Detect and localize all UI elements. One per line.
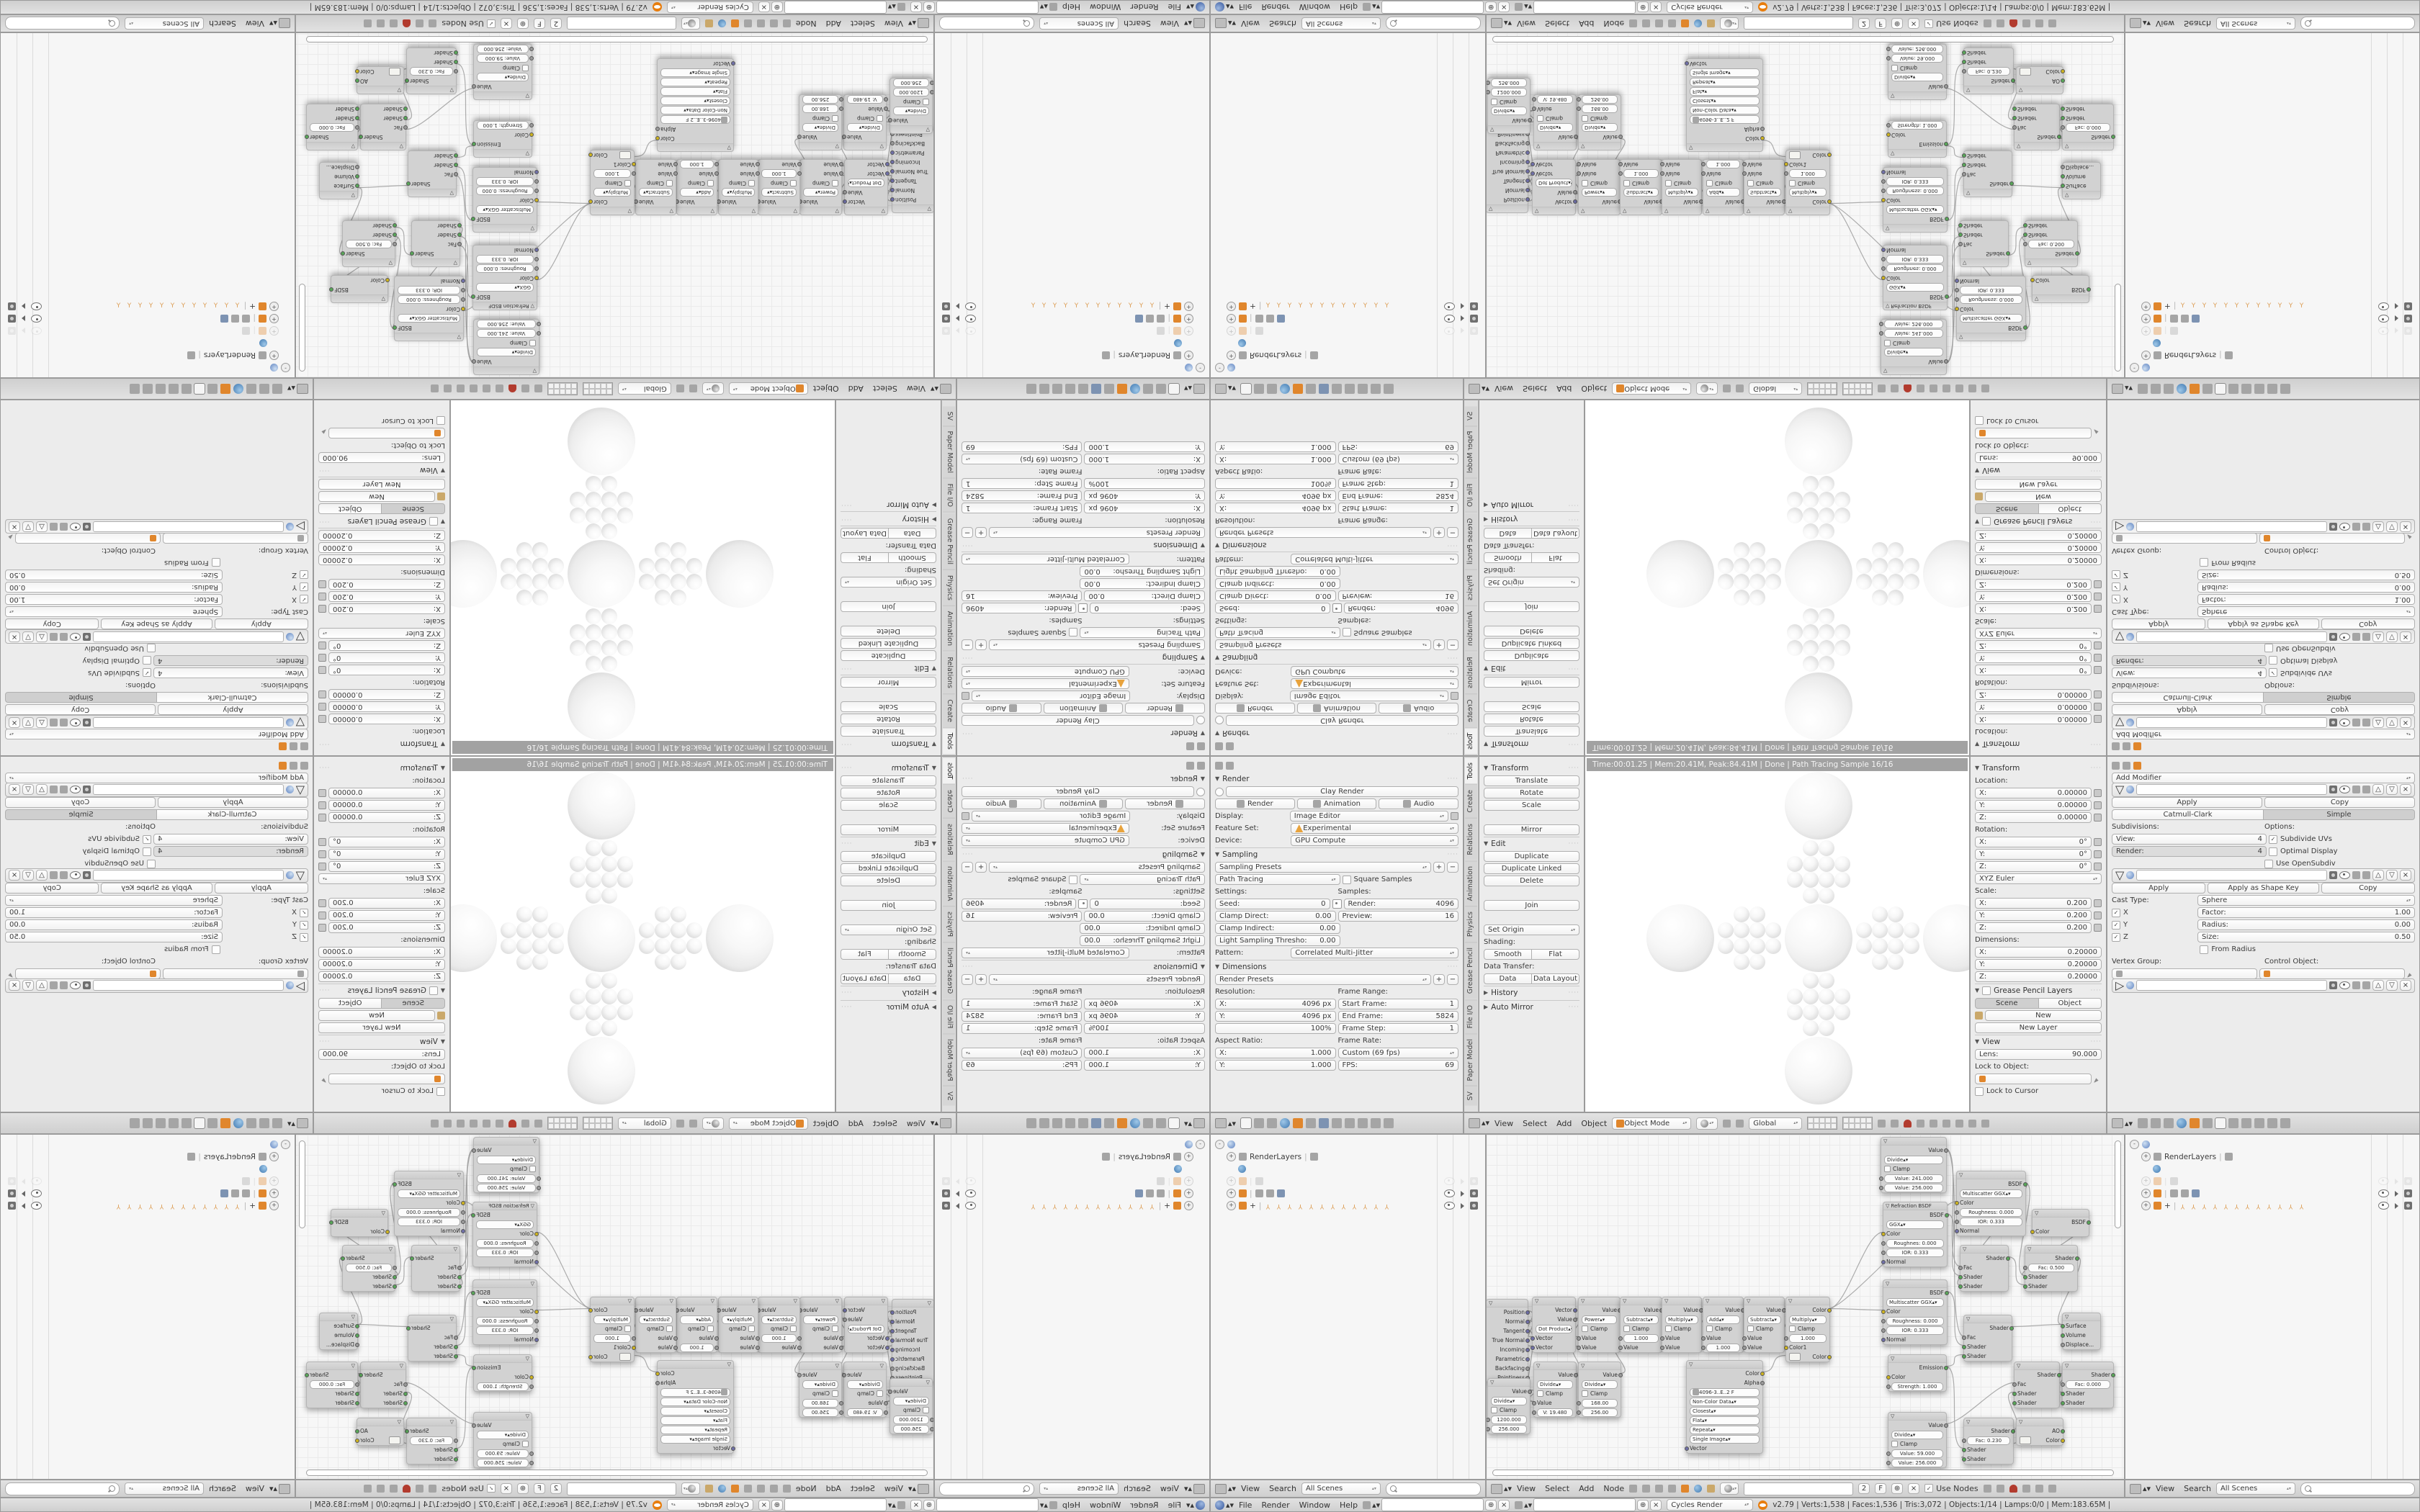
checkbox-z[interactable]: ✓Z (225, 571, 308, 580)
node-checkbox-clamp[interactable] (923, 99, 929, 105)
node-select-repeat[interactable]: Repeat▴▾ (1690, 78, 1760, 87)
select-path-tracing[interactable]: Path Tracing▴▾ (1080, 627, 1206, 638)
outliner-row[interactable]: +| (2130, 1187, 2415, 1200)
layer-cell[interactable] (601, 1117, 606, 1123)
field-frame-step[interactable]: Frame Step:1 (962, 1023, 1083, 1034)
fake-user-button[interactable]: F (1875, 18, 1886, 29)
field-y[interactable]: Y:0.00000 (1975, 701, 2092, 712)
eyedrop-icon[interactable] (2094, 429, 2102, 437)
node-math-23[interactable]: ▽ShaderFac: 0.000ShaderShader (2062, 104, 2114, 150)
outliner-row[interactable]: ++|YYYYYYYYYYYY (2130, 1200, 2415, 1212)
node-math-21[interactable]: ▽EmissionColorStrength: 1.000 (1888, 1354, 1947, 1392)
node-field-256-00[interactable]: 256.00 (802, 96, 838, 104)
node-math-9[interactable]: ▽ValueSubtract▴▾ClampValueValue (1744, 1297, 1785, 1353)
modifier-up-button[interactable]: △ (2372, 784, 2384, 795)
menu-view[interactable]: View (1517, 1484, 1536, 1493)
select-correlated-multi-jitter[interactable]: Correlated Multi-Jitter▴▾ (1291, 554, 1458, 564)
modifier-name-field[interactable] (93, 521, 284, 532)
menu-select[interactable]: Select (873, 1119, 897, 1128)
node-field-168-00[interactable]: 168.00 (1582, 1399, 1618, 1408)
context-tab-texture-icon[interactable] (156, 384, 166, 394)
output-socket-color[interactable] (2061, 1439, 2065, 1443)
node-header[interactable]: ▽ (2033, 294, 2089, 302)
modifier-name-field[interactable] (2136, 870, 2327, 881)
field-seed[interactable]: Seed:0 (1215, 899, 1330, 909)
node-select-non-color-data[interactable]: Non-Color Data▴▾ (660, 107, 730, 115)
layer-cell[interactable] (589, 389, 595, 395)
tab-paper-model[interactable]: Paper Model (943, 426, 955, 479)
checkbox-optimal-display[interactable]: Optimal Display (5, 657, 151, 665)
segbtn-simple[interactable]: Simple (5, 809, 156, 820)
field-z[interactable]: Z:0.200 (328, 579, 445, 590)
output-socket-color[interactable] (1827, 1355, 1832, 1359)
node-math-1[interactable]: ▽ValueDivide▴▾Clamp1200.000256.000 (1487, 1378, 1531, 1434)
node-editor-hscrollbar[interactable] (1492, 1470, 2114, 1476)
field-y[interactable]: Y:4096 px (1215, 490, 1336, 501)
field-z[interactable]: Z:0.00000 (328, 812, 445, 823)
node-field-1200-000[interactable]: 1200.000 (1491, 1416, 1527, 1424)
lock-icon[interactable] (2094, 801, 2102, 809)
output-socket-alpha[interactable] (655, 127, 660, 131)
node-math-17[interactable]: ▽ShaderFacShaderShader (411, 1245, 460, 1292)
input-socket-shader[interactable] (1962, 50, 1966, 55)
node-header[interactable]: ▽ (1744, 207, 1784, 215)
layer-cell[interactable] (1819, 1117, 1825, 1123)
eye-icon[interactable] (965, 1177, 976, 1185)
node-header[interactable]: ▽ (1964, 1315, 2012, 1323)
node-math-14[interactable]: ▽BSDFMultiscatter GGX▴▾ColorRoughness: 0… (472, 167, 537, 233)
menu-view[interactable]: View (1494, 384, 1513, 394)
node-math-24[interactable]: ▽ValueDivide▴▾ClampValue: 59.000Value: 2… (1888, 1412, 1947, 1468)
context-tab-scene-icon[interactable] (1143, 1118, 1153, 1128)
context-tab-object-icon[interactable] (1293, 1118, 1303, 1128)
field-clamp-direct[interactable]: Clamp Direct:0.00 (1215, 590, 1336, 601)
menu-view[interactable]: View (2156, 19, 2174, 28)
node-header[interactable]: ▽ (758, 207, 799, 215)
panel-view[interactable]: ▼View···· (1975, 1035, 2102, 1048)
input-socket[interactable] (714, 162, 719, 166)
checkbox-box[interactable] (2200, 559, 2208, 567)
select-image-editor[interactable]: Image Editor▴▾ (1290, 690, 1448, 701)
panel-checkbox[interactable] (1982, 518, 1991, 526)
field-render[interactable]: Render:4 (153, 846, 308, 857)
node-field-roughness-0-000[interactable]: Roughness: 0.000 (398, 296, 460, 305)
node-field-1200-000[interactable]: 1200.000 (893, 89, 929, 97)
layer-cell[interactable] (548, 389, 554, 395)
context-tab-scene-icon[interactable] (2164, 384, 2174, 394)
node-math-20[interactable]: ▽SurfaceVolumeDisplace... (2062, 162, 2101, 199)
editor-type-button[interactable]: ▴▾ (2112, 384, 2133, 394)
context-tab-texture-icon[interactable] (1358, 384, 1368, 394)
layer-cell[interactable] (1831, 383, 1837, 389)
node-header[interactable]: ▽Refraction BSDF (1883, 1202, 1947, 1210)
field-start-frame[interactable]: Start Frame:1 (962, 503, 1083, 513)
menu-object[interactable]: Object (1581, 1119, 1607, 1128)
input-socket[interactable] (1881, 257, 1886, 261)
context-tab-constraints-icon[interactable] (207, 1118, 218, 1128)
node-math-15[interactable]: ▽BSDFMultiscatter GGX▴▾ColorRoughness: 0… (1956, 1171, 2026, 1236)
node-header[interactable]: ▽ (677, 1297, 717, 1305)
input-socket-volume[interactable] (355, 1333, 359, 1338)
node-select-multiscatter-ggx[interactable]: Multiscatter GGX▴▾ (1886, 1298, 1944, 1307)
node-select-multiply[interactable]: Multiply▴▾ (722, 1315, 755, 1324)
input-socket[interactable] (1881, 189, 1886, 193)
eye-icon[interactable] (2378, 1189, 2389, 1197)
field-render[interactable]: Render:4096 (1344, 603, 1459, 613)
input-socket[interactable] (1886, 1452, 1891, 1456)
segbtn-flat[interactable]: Flat (841, 552, 888, 563)
input-socket[interactable] (2061, 1382, 2065, 1387)
material-name-field[interactable] (1744, 17, 1853, 30)
node-math-20[interactable]: ▽SurfaceVolumeDisplace... (319, 1313, 358, 1350)
node-editor-vscrollbar[interactable] (2115, 284, 2121, 372)
output-socket-value[interactable] (1944, 1423, 1948, 1428)
mini-button-add[interactable]: + (1433, 974, 1445, 985)
cursor-icon[interactable] (2395, 328, 2398, 334)
node-header[interactable]: ▽ (2025, 1246, 2077, 1254)
lock-icon[interactable] (2094, 580, 2102, 588)
select-custom-69-fps[interactable]: Custom (69 fps)▴▾ (1338, 1048, 1459, 1058)
panel-history[interactable]: ▶History···· (841, 513, 936, 526)
close-button[interactable]: × (1498, 2, 1510, 13)
panel-auto-mirror[interactable]: ▶Auto Mirror···· (1484, 499, 1579, 512)
field-lens[interactable]: Lens:90.000 (1975, 452, 2102, 463)
input-socket-normal[interactable] (534, 170, 539, 174)
tab-file-i-o[interactable]: File I/O (943, 999, 955, 1033)
modifier-delete-button[interactable]: × (2400, 980, 2411, 991)
expand-toggle-icon[interactable]: + (1184, 326, 1193, 336)
editor-type-button[interactable]: ▴▾ (1215, 1118, 1236, 1128)
input-socket-shader[interactable] (457, 1284, 462, 1289)
lock-icon[interactable] (318, 924, 326, 932)
input-socket-shader[interactable] (1962, 163, 1966, 167)
button-new-layer[interactable]: New Layer (318, 479, 445, 490)
output-socket-parametric[interactable] (1525, 150, 1530, 155)
node-math-22[interactable]: ▽ShaderFacShaderShader (360, 1362, 406, 1408)
select-gpu-compute[interactable]: GPU Compute▴▾ (962, 666, 1129, 677)
node-select-multiscatter-ggx[interactable]: Multiscatter GGX▴▾ (476, 1298, 534, 1307)
node-select-multiply[interactable]: Multiply▴▾ (1665, 1315, 1698, 1324)
expand-toggle-icon[interactable]: + (1227, 1201, 1236, 1210)
context-tab-physics-icon[interactable] (2280, 384, 2290, 394)
input-socket-value[interactable] (1577, 1346, 1581, 1350)
node-field-value-241-000[interactable]: Value: 241.000 (1884, 1174, 1943, 1183)
output-socket-ao[interactable] (355, 1429, 359, 1434)
select-sampling-presets[interactable]: Sampling Presets▴▾ (1215, 862, 1431, 873)
eye-icon[interactable] (965, 327, 976, 335)
modifier-name-field[interactable] (2136, 717, 2327, 728)
panel-grease-pencil-layers[interactable]: ▼Grease Pencil Layers···· (1975, 984, 2102, 996)
node-math-19[interactable]: ▽ShaderFacShaderShader (408, 1315, 457, 1362)
checkbox-subdivide-uvs[interactable]: ✓Subdivide UVs (5, 669, 151, 678)
select-custom-69-fps[interactable]: Custom (69 fps)▴▾ (962, 1048, 1083, 1058)
field-x[interactable]: X:4096 px (1085, 503, 1206, 513)
node-math-12[interactable]: ▽ValueDivide▴▾ClampValue: 241.000Value: … (1881, 319, 1947, 375)
context-tab-scene-icon[interactable] (1267, 1118, 1277, 1128)
output-socket-bsdf[interactable] (471, 294, 475, 299)
node-select-multiscatter-ggx[interactable]: Multiscatter GGX▴▾ (398, 1189, 460, 1198)
field-radius[interactable]: Radius:0.00 (2197, 582, 2415, 593)
node-select-closest[interactable]: Closest▴▾ (660, 97, 730, 106)
field-start-frame[interactable]: Start Frame:1 (962, 999, 1083, 1009)
node-field-256-000[interactable]: 256.000 (1491, 1425, 1527, 1434)
menu-view[interactable]: View (907, 1119, 926, 1128)
node-select-subtract[interactable]: Subtract▴▾ (1747, 189, 1781, 197)
eyedrop-icon[interactable] (318, 1075, 326, 1083)
button-new[interactable]: New (1985, 491, 2102, 502)
select-custom-69-fps[interactable]: Custom (69 fps)▴▾ (962, 454, 1083, 464)
unlink-material-button[interactable]: × (1908, 1483, 1919, 1494)
node-field-value-256-000[interactable]: Value: 256.000 (477, 320, 536, 329)
tab-paper-model[interactable]: Paper Model (1465, 1033, 1477, 1086)
layer-cell[interactable] (583, 1117, 589, 1123)
field-x[interactable]: X:0° (328, 665, 445, 675)
node-header[interactable]: ▽ (1964, 189, 2012, 197)
node-math-18[interactable]: ▽ShaderFac: 0.500ShaderShader (2025, 1245, 2078, 1292)
node-checkbox-clamp[interactable] (748, 180, 755, 186)
output-socket-value[interactable] (472, 1148, 476, 1153)
select-image-editor[interactable]: Image Editor▴▾ (1290, 811, 1448, 822)
node-math-17[interactable]: ▽ShaderFacShaderShader (1960, 220, 2009, 267)
lock-icon[interactable] (2094, 654, 2102, 662)
outliner-row[interactable]: +| (5, 1187, 290, 1200)
button-animation[interactable]: Animation (1044, 703, 1124, 714)
panel-transform[interactable]: ▼Transform···· (1975, 738, 2102, 750)
select-sampling-presets[interactable]: Sampling Presets▴▾ (989, 639, 1205, 650)
context-tab-modifiers-icon[interactable] (194, 1118, 205, 1128)
input-socket-value[interactable] (756, 171, 760, 176)
outliner-row[interactable]: +| (1215, 1187, 1481, 1200)
field-x[interactable]: X:0.200 (328, 898, 445, 909)
node-header[interactable]: ▽ (799, 1362, 841, 1370)
new-material-button[interactable]: ⊕ (1891, 18, 1903, 29)
field-preview[interactable]: Preview:16 (962, 911, 1083, 922)
input-socket-color[interactable] (461, 307, 465, 311)
context-tab-render-icon[interactable] (1241, 1118, 1251, 1128)
eyedrop-icon[interactable] (2094, 1075, 2102, 1083)
material-name-field[interactable] (1744, 1482, 1853, 1495)
input-socket[interactable] (797, 171, 802, 176)
input-socket[interactable] (529, 1385, 534, 1389)
scene-selector[interactable] (1533, 1498, 1636, 1511)
menu-search[interactable]: Search (209, 1484, 236, 1493)
node-checkbox-clamp[interactable] (1623, 1326, 1630, 1332)
material-name-field[interactable] (567, 1482, 676, 1495)
input-socket[interactable] (1532, 97, 1536, 102)
viewport-3d[interactable]: Time:00:01.25 | Mem:20.41M, Peak:84.41M … (1585, 756, 1970, 1112)
node-select-divide[interactable]: Divide▴▾ (1537, 124, 1573, 132)
node-header[interactable]: ▽ (677, 207, 717, 215)
expand-toggle-icon[interactable]: + (2141, 1201, 2151, 1210)
scene-filter-select[interactable]: All Scenes▴▾ (1039, 1482, 1119, 1495)
menu-select[interactable]: Select (1545, 1484, 1569, 1493)
editor-type-button[interactable]: ▴▾ (287, 384, 308, 394)
node-field-256-000[interactable]: 256.000 (1491, 79, 1527, 88)
node-checkbox-clamp[interactable] (1537, 115, 1543, 122)
input-socket[interactable] (1879, 331, 1883, 336)
node-header[interactable]: ▽ (357, 1418, 403, 1426)
output-socket-tangent[interactable] (890, 1329, 895, 1333)
add-button[interactable]: ⊕ (923, 1500, 935, 1511)
eye-icon[interactable] (965, 1202, 976, 1210)
camera-icon[interactable] (942, 1202, 950, 1210)
node-field-168-00[interactable]: 168.00 (802, 1399, 838, 1408)
input-socket-vector[interactable] (1685, 61, 1689, 66)
node-header[interactable]: ▽ (845, 1297, 887, 1305)
tab-file-i-o[interactable]: File I/O (1465, 999, 1477, 1033)
checkbox-box[interactable]: ✓ (143, 835, 151, 844)
node-select-multiply[interactable]: Multiply▴▾ (722, 189, 755, 197)
layer-cell[interactable] (606, 383, 612, 389)
eye-icon[interactable] (1444, 327, 1455, 335)
input-socket-color[interactable] (2030, 278, 2035, 282)
select-sphere[interactable]: Sphere▴▾ (5, 895, 223, 906)
node-checkbox-clamp[interactable] (1884, 1166, 1891, 1172)
expand-toggle-icon[interactable]: + (2141, 1189, 2151, 1198)
field-render[interactable]: Render:4 (153, 655, 308, 666)
layers-widget[interactable] (547, 1117, 578, 1130)
field-y[interactable]: Y:0° (1975, 652, 2092, 663)
add-button[interactable]: ⊕ (771, 1500, 783, 1511)
node-select-add[interactable]: Add▴▾ (1706, 189, 1740, 197)
cursor-icon[interactable] (2395, 1179, 2398, 1184)
checkbox-box[interactable]: ✓ (300, 583, 308, 592)
checkbox-x[interactable]: ✓X (225, 595, 308, 604)
lock-icon[interactable] (1451, 812, 1458, 820)
node-select-divide[interactable]: Divide▴▾ (1891, 73, 1943, 82)
node-header[interactable]: ▽ (1703, 207, 1743, 215)
input-socket[interactable] (1577, 107, 1581, 111)
field-view[interactable]: View:4 (153, 667, 308, 678)
node-field-strength-1-000[interactable]: Strength: 1.000 (477, 1382, 529, 1391)
node-header[interactable]: ▽ (2017, 86, 2063, 94)
button-copy[interactable]: Copy (2264, 704, 2415, 715)
context-tab-render-icon[interactable] (272, 1118, 282, 1128)
context-tab-data-icon[interactable] (1078, 384, 1088, 394)
node-select-multiply[interactable]: Multiply▴▾ (593, 189, 631, 197)
layer-cell[interactable] (548, 1117, 554, 1123)
output-socket-shader[interactable] (406, 1326, 411, 1331)
layer-cell[interactable] (583, 383, 589, 389)
node-field-1-000[interactable]: 1.000 (593, 1334, 631, 1343)
node-checkbox-clamp[interactable] (529, 340, 536, 346)
context-tab-scene-icon[interactable] (246, 384, 256, 394)
output-socket-shader[interactable] (2009, 181, 2014, 186)
cursor-icon[interactable] (1461, 316, 1464, 322)
editor-type-button[interactable]: ▴▾ (931, 1118, 951, 1128)
output-socket-value[interactable] (1618, 135, 1623, 139)
output-socket-shader[interactable] (410, 251, 414, 256)
layer-cell[interactable] (1866, 1117, 1872, 1123)
segbtn-scene[interactable]: Scene (382, 998, 446, 1009)
node-header[interactable]: ▽ (658, 143, 733, 151)
menu-add[interactable]: Add (826, 1484, 841, 1493)
select-experimental[interactable]: Experimental▴▾ (1291, 823, 1458, 834)
outliner-row[interactable]: +| (2130, 1175, 2415, 1187)
input-socket-normal[interactable] (1881, 248, 1886, 252)
output-socket-value[interactable] (842, 135, 846, 139)
layer-cell[interactable] (1860, 1117, 1866, 1123)
node-select-flat[interactable]: Flat▴▾ (1690, 88, 1760, 96)
output-socket-shader[interactable] (359, 1373, 363, 1377)
button-delete[interactable]: Delete (841, 876, 936, 886)
node-checkbox-clamp[interactable] (624, 180, 631, 186)
node-header[interactable]: ▽ (2063, 191, 2100, 199)
node-header[interactable]: ▽ (412, 1246, 460, 1254)
field-x[interactable]: X:1.000 (1215, 1048, 1336, 1058)
node-field-1-000[interactable]: 1.000 (1623, 170, 1659, 179)
panel-transform[interactable]: ▼Transform···· (318, 738, 445, 750)
node-math-16[interactable]: ▽BSDFColor (331, 1209, 388, 1237)
select-render-presets[interactable]: Render Presets▴▾ (1215, 974, 1431, 985)
node-header[interactable]: ▽ (1533, 1297, 1575, 1305)
context-tab-object-icon[interactable] (2190, 1118, 2200, 1128)
screen-layout-selector[interactable] (936, 1498, 1039, 1511)
button-join[interactable]: Join (841, 601, 936, 612)
field-fps[interactable]: FPS:69 (962, 1060, 1083, 1071)
modifier-header[interactable]: ▽△▽× (5, 783, 308, 797)
node-math-22[interactable]: ▽ShaderFacShaderShader (2014, 1362, 2060, 1408)
node-header[interactable]: ▽ (1881, 366, 1946, 374)
vertex-group-field[interactable] (2112, 968, 2257, 979)
context-tab-material-icon[interactable] (1065, 1118, 1075, 1128)
layers-widget[interactable] (583, 1117, 613, 1130)
node-select-multiply[interactable]: Multiply▴▾ (1665, 189, 1698, 197)
input-socket[interactable] (1881, 266, 1886, 271)
output-socket-position[interactable] (890, 197, 895, 202)
add-button[interactable]: ⊕ (1637, 2, 1649, 13)
node-field-fac-0-230[interactable]: Fac: 0.230 (1967, 1436, 2010, 1445)
node-select-multiscatter-ggx[interactable]: Multiscatter GGX▴▾ (398, 315, 460, 323)
output-socket-bsdf[interactable] (471, 1291, 475, 1295)
field-z[interactable]: Z:0° (328, 861, 445, 872)
field-size[interactable]: Size:0.50 (5, 932, 223, 942)
cursor-icon[interactable] (956, 328, 959, 334)
modifier-down-button[interactable]: ▽ (2386, 870, 2398, 881)
output-socket-value[interactable] (842, 1373, 846, 1377)
node-select-divide[interactable]: Divide▴▾ (477, 1156, 536, 1164)
node-math-17[interactable]: ▽ShaderFacShaderShader (1960, 1245, 2009, 1292)
field-z[interactable]: Z:0.200 (1975, 579, 2092, 590)
node-checkbox-clamp[interactable] (666, 1326, 673, 1332)
select-set-origin[interactable]: Set Origin▴▾ (841, 924, 936, 935)
node-header[interactable]: ▽ (2063, 1313, 2100, 1321)
button-new[interactable]: New (1985, 1010, 2102, 1021)
output-socket-value[interactable] (843, 190, 847, 194)
button-copy[interactable]: Copy (2321, 618, 2415, 629)
input-socket[interactable] (632, 1336, 636, 1341)
context-tab-physics-icon[interactable] (130, 1118, 140, 1128)
output-socket-bsdf[interactable] (471, 1213, 475, 1218)
panel-checkbox[interactable] (429, 986, 438, 995)
editor-type-button[interactable]: ▴▾ (1491, 1484, 1512, 1494)
expand-toggle-icon[interactable]: - (281, 1140, 290, 1149)
checkbox-y[interactable]: ✓Y (225, 583, 308, 592)
input-socket[interactable] (1881, 179, 1886, 184)
button-mirror[interactable]: Mirror (841, 677, 936, 688)
field-y[interactable]: Y:0.00000 (328, 800, 445, 811)
node-header[interactable]: ▽ (1744, 1297, 1784, 1305)
editor-type-button[interactable]: ▴▾ (1491, 19, 1512, 29)
node-select-divide[interactable]: Divide▴▾ (1491, 1397, 1527, 1405)
input-socket[interactable] (839, 97, 843, 102)
segbtn-catmull-clark[interactable]: Catmull-Clark (156, 692, 308, 703)
context-tab-render-icon[interactable] (2138, 384, 2148, 394)
layer-cell[interactable] (571, 1117, 577, 1123)
layer-cell[interactable] (583, 1123, 589, 1129)
checkbox-box[interactable]: ✓ (2112, 909, 2120, 917)
input-socket-normal[interactable] (534, 1338, 539, 1342)
